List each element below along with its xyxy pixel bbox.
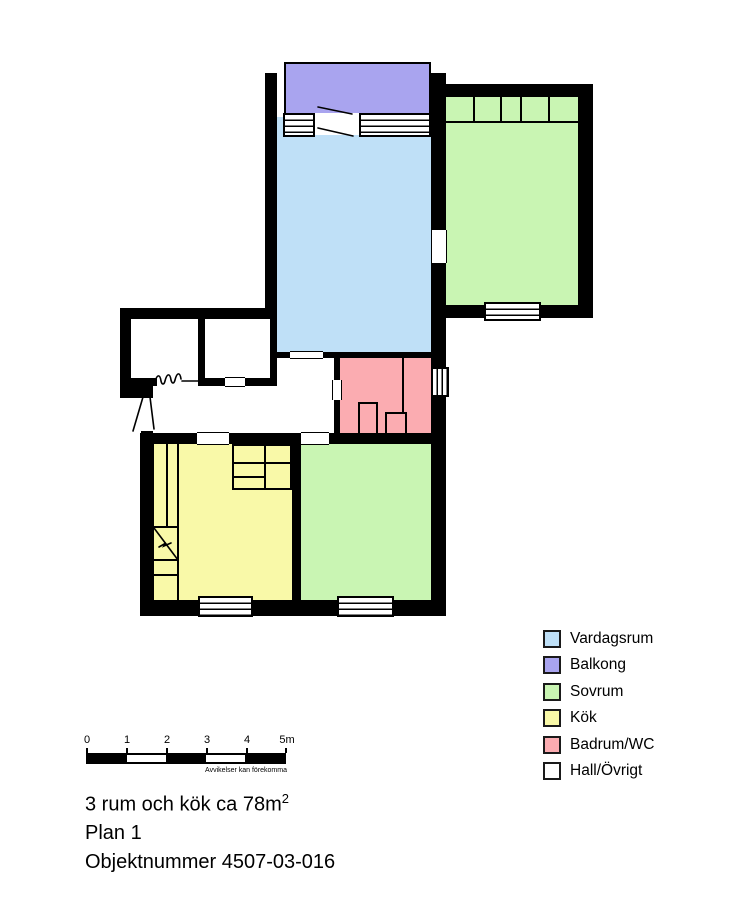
- legend-label: Badrum/WC: [570, 736, 654, 754]
- legend-label: Vardagsrum: [570, 630, 653, 648]
- scalebar-disclaimer: Avvikelser kan förekomma: [86, 766, 287, 775]
- scalebar-segment: [245, 755, 284, 762]
- title-block: 3 rum och kök ca 78m2 Plan 1 Objektnumme…: [85, 785, 335, 876]
- legend-label: Hall/Övrigt: [570, 762, 642, 780]
- legend-row: Sovrum: [543, 682, 623, 702]
- floor-label: Plan 1: [85, 819, 335, 848]
- legend-swatch-badrum: [543, 736, 561, 754]
- scalebar-segment: [206, 755, 245, 762]
- scalebar-tick-label: 2: [164, 734, 170, 746]
- legend-swatch-sovrum: [543, 683, 561, 701]
- scalebar-tick-label: 5m: [279, 734, 294, 746]
- kitchen-appliance-symbol: [154, 528, 178, 560]
- legend-label: Kök: [570, 709, 597, 727]
- hall-rail-squiggle: [155, 374, 198, 384]
- scalebar-tick-label: 4: [244, 734, 250, 746]
- apartment-summary: 3 rum och kök ca 78m2: [85, 785, 335, 819]
- scalebar-segment: [88, 755, 127, 762]
- object-number: Objektnummer 4507-03-016: [85, 848, 335, 877]
- entry-door-swing: [133, 397, 154, 431]
- legend-row: Hall/Övrigt: [543, 761, 642, 781]
- legend-swatch-balkong: [543, 656, 561, 674]
- legend-swatch-kok: [543, 709, 561, 727]
- scalebar-tick-label: 0: [84, 734, 90, 746]
- area-superscript: 2: [282, 791, 289, 806]
- floorplan-page: 0 1 2 3 4 5m Avvikelser kan förekomma Va…: [0, 0, 742, 900]
- legend-label: Sovrum: [570, 683, 623, 701]
- scalebar-tick-label: 1: [124, 734, 130, 746]
- scalebar-bar: [86, 753, 286, 764]
- legend-row: Balkong: [543, 655, 626, 675]
- legend-swatch-hall: [543, 762, 561, 780]
- legend-swatch-vardagsrum: [543, 630, 561, 648]
- legend-row: Vardagsrum: [543, 629, 653, 649]
- scalebar-segment: [127, 755, 166, 762]
- scalebar-segment: [166, 755, 205, 762]
- legend-label: Balkong: [570, 656, 626, 674]
- balcony-door-swing: [318, 107, 353, 136]
- scalebar-tick-label: 3: [204, 734, 210, 746]
- legend-row: Kök: [543, 708, 597, 728]
- legend-row: Badrum/WC: [543, 735, 654, 755]
